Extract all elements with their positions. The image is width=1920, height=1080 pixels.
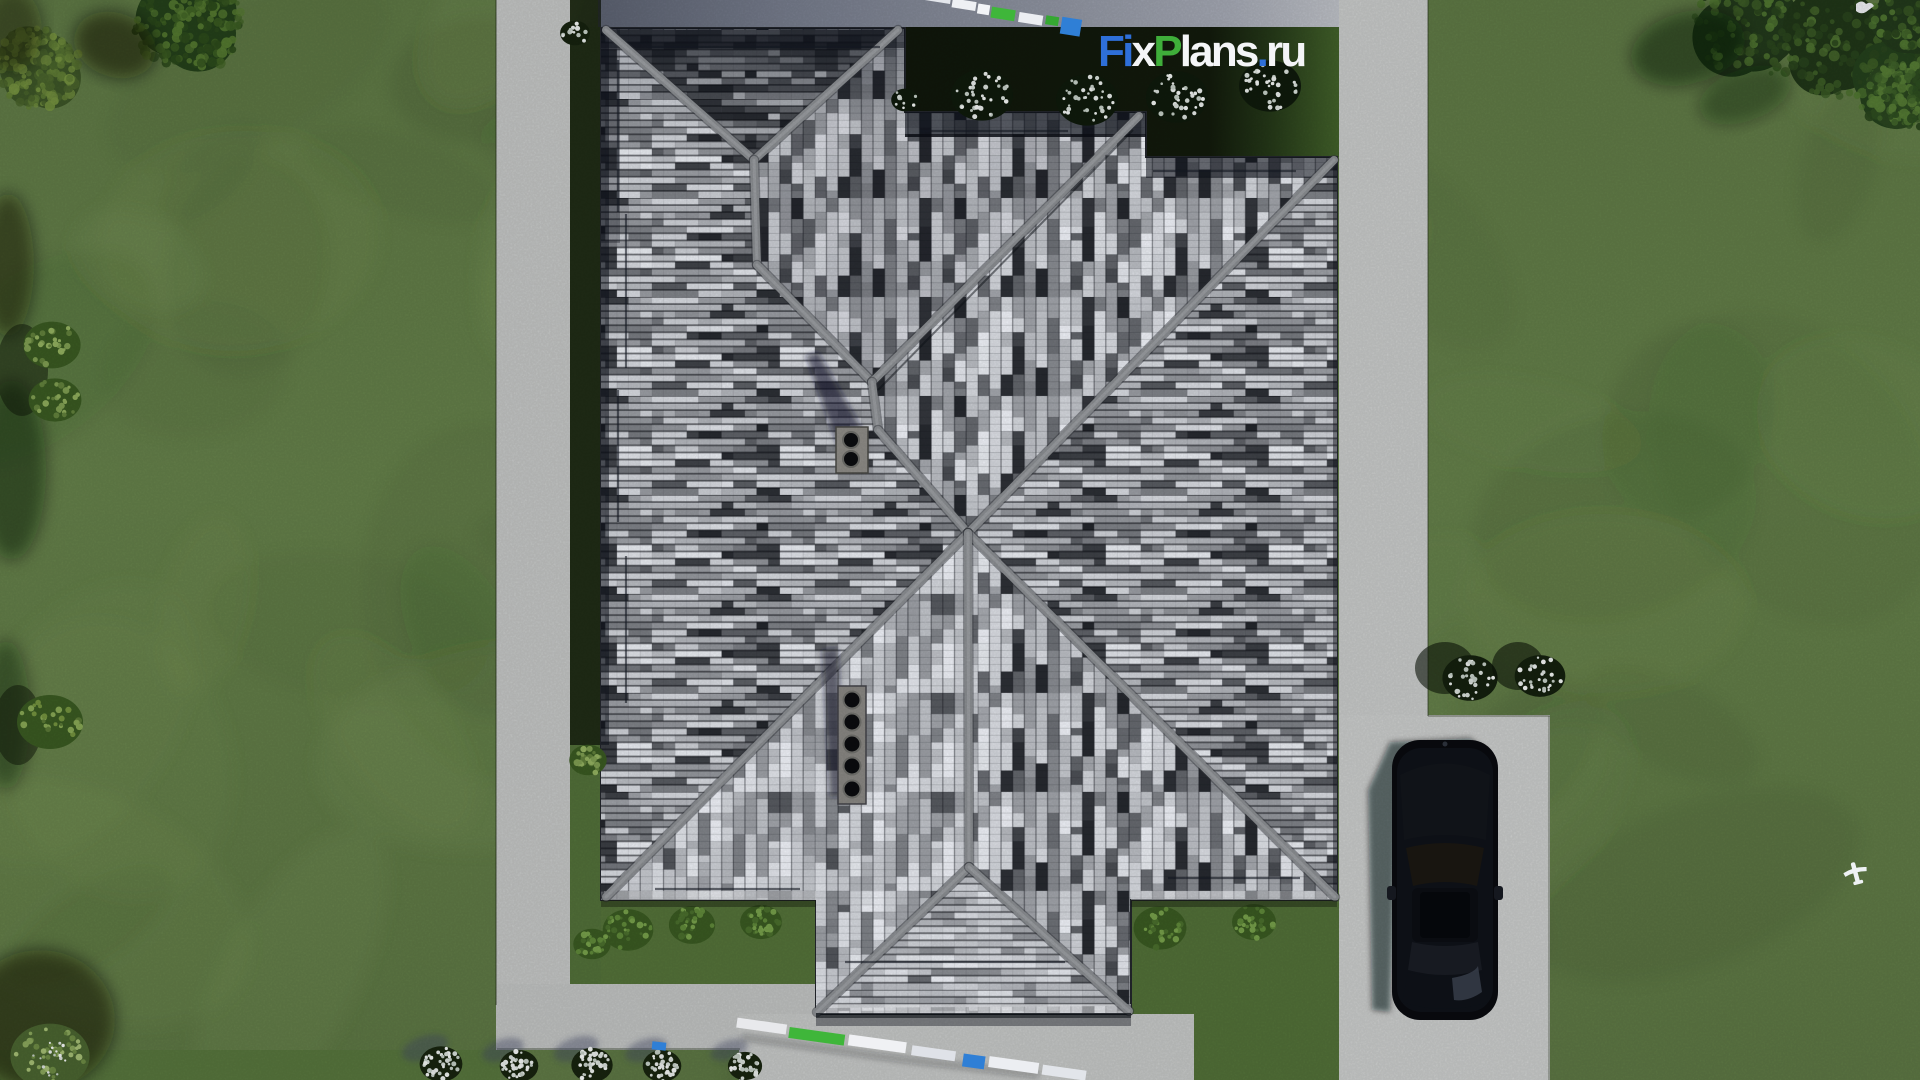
svg-text:FixPlans.ru: FixPlans.ru [1098, 27, 1304, 76]
